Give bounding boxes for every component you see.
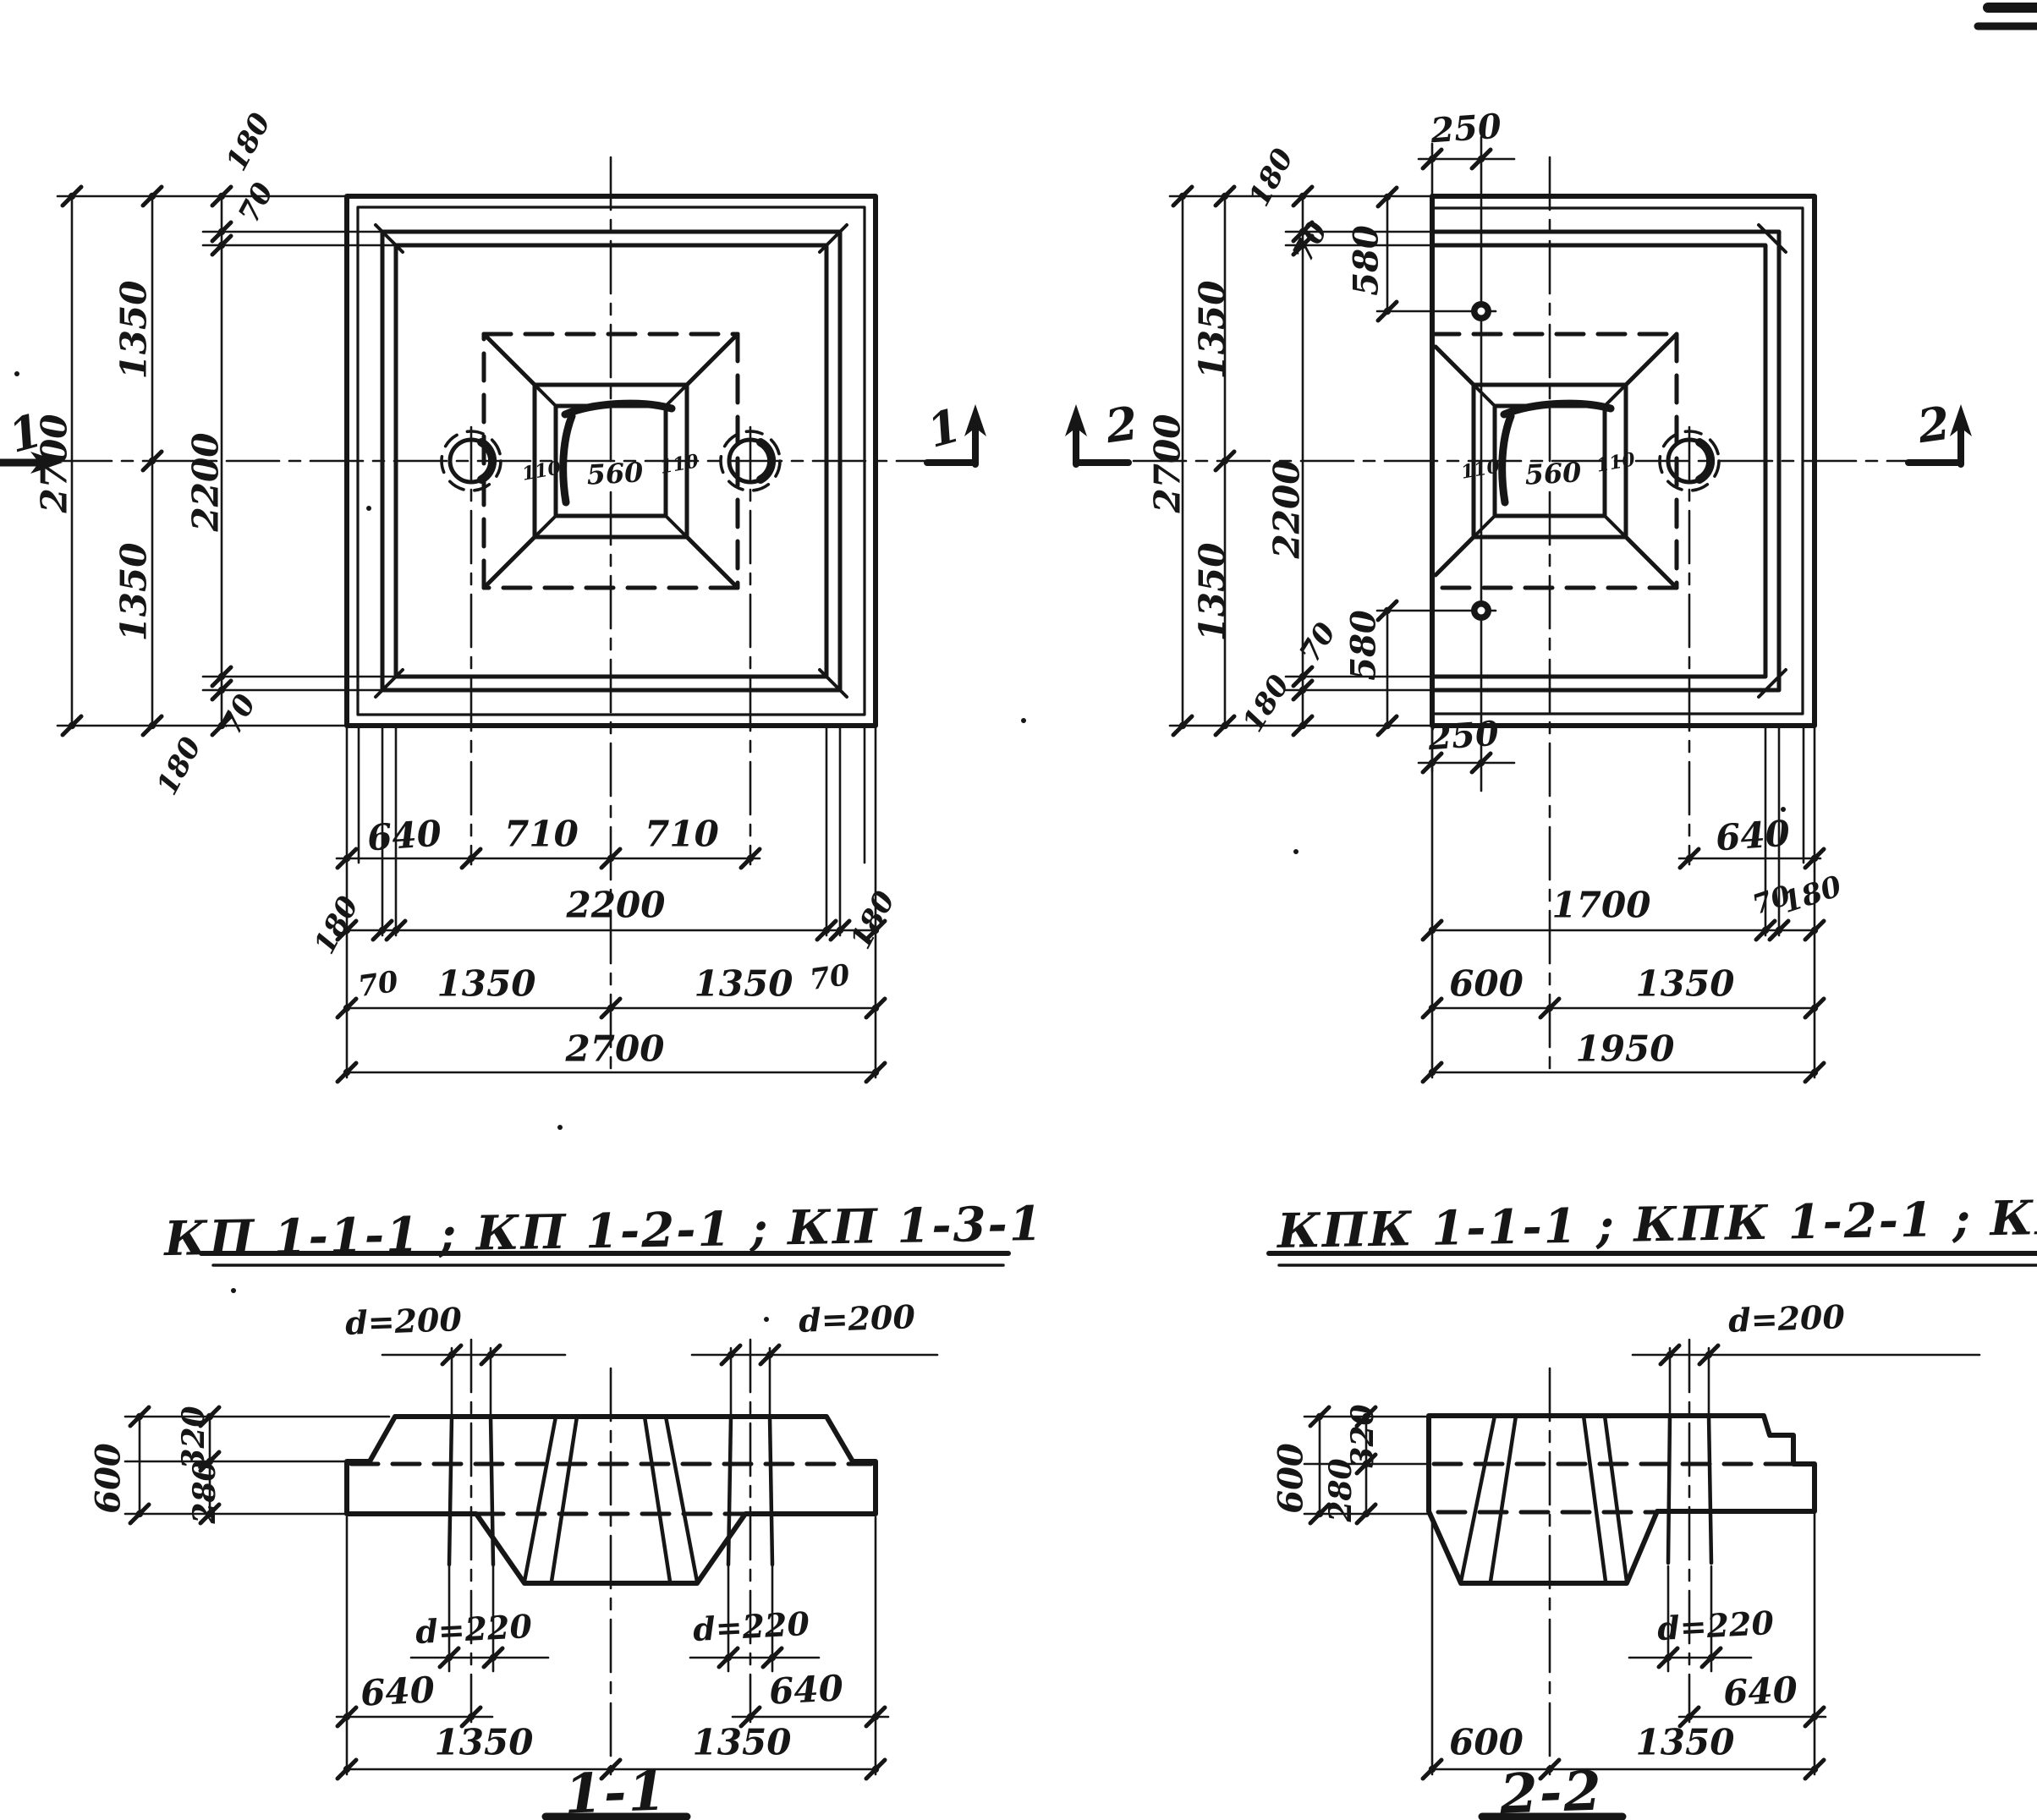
anchor-hole-dot — [14, 371, 19, 376]
drawing-line — [1605, 516, 1626, 537]
drawing-line — [1436, 537, 1474, 575]
label-plan-left-dim-2200-v: 2200 — [185, 433, 227, 533]
label-plan-right-dim-1700: 1700 — [1552, 885, 1651, 926]
anchor-hole-dot — [1781, 807, 1786, 812]
dim-dot — [1179, 193, 1186, 200]
dim-dot — [1665, 1654, 1672, 1661]
dim-dot — [343, 855, 350, 862]
dim-dot — [468, 855, 475, 862]
dim-dot — [393, 927, 399, 934]
label-plan-right-dim-70-bottom: 70 — [1293, 617, 1342, 669]
label-titles-section-right: 2-2 — [1498, 1759, 1604, 1820]
dim-dot — [1478, 759, 1485, 766]
dim-dot — [727, 1351, 734, 1358]
drawing-line — [1759, 670, 1786, 697]
label-plan-right-dim-180-top: 180 — [1243, 143, 1301, 212]
label-plan-left-dim-180-right: 180 — [844, 885, 903, 955]
dim-dot — [747, 855, 754, 862]
drawing-line — [820, 670, 847, 697]
drawing-line — [1584, 1416, 1606, 1582]
label-plan-left-dim-1350-left: 1350 — [437, 963, 536, 1005]
label-plan-right-dim-1350-top: 1350 — [1192, 281, 1233, 380]
label-plan-right-dim-250-bottom: 250 — [1426, 714, 1501, 759]
drawing-line — [687, 334, 738, 385]
dim-dot — [872, 1713, 879, 1720]
dim-dot — [149, 722, 156, 729]
outline-path — [1502, 416, 1511, 502]
dim-dot — [1546, 1005, 1553, 1011]
label-plan-right-dim-1950: 1950 — [1576, 1028, 1675, 1070]
label-section-1-dim-d200-left: d=200 — [344, 1300, 463, 1342]
dim-dot — [343, 1766, 350, 1773]
label-plan-left-dim-640: 640 — [366, 813, 443, 859]
label-section-2-dim-d220: d=220 — [1656, 1603, 1775, 1647]
label-titles-plan-left-types: КП 1-1-1 ; КП 1-2-1 ; КП 1-3-1 — [162, 1196, 1045, 1267]
drawing-line — [1626, 537, 1677, 588]
dim-dot — [1429, 759, 1436, 766]
label-titles-section-left: 1-1 — [563, 1759, 668, 1820]
label-plan-left-dim-1350-bottom: 1350 — [113, 543, 155, 642]
dim-dot — [343, 1069, 350, 1076]
drawing-line — [552, 1417, 577, 1582]
drawing-line — [666, 516, 687, 537]
dim-dot — [1429, 156, 1436, 162]
dim-dot — [766, 1351, 773, 1358]
drawing-line — [376, 225, 403, 252]
dim-dot — [1222, 722, 1228, 729]
dim-dot — [468, 1713, 475, 1720]
drawing-line — [1668, 1416, 1670, 1563]
dim-dot — [1299, 722, 1306, 729]
label-plan-left-dim-2700-v: 2700 — [34, 414, 75, 514]
label-plan-right-dim-180-right: 180 — [1778, 869, 1846, 920]
label-plan-right-dim-180-bottom: 180 — [1236, 669, 1297, 738]
dim-dot — [607, 1005, 614, 1011]
drawing-line — [484, 334, 535, 385]
foundation-blueprint: 1127001350135022001807070180640710710180… — [0, 0, 2037, 1820]
label-plan-right-dim-70-top: 70 — [1286, 216, 1335, 267]
label-plan-left-dim-2200-h: 2200 — [566, 885, 666, 926]
label-section-2-dim-600: 600 — [1271, 1443, 1311, 1514]
label-plan-left-dim-710-right: 710 — [645, 814, 719, 855]
drawing-line — [1436, 347, 1474, 385]
dim-dot — [446, 1654, 453, 1661]
dim-dot — [218, 687, 225, 693]
dim-dot — [149, 458, 156, 464]
label-plan-left-dim-1350-right: 1350 — [695, 963, 793, 1005]
drawing-line — [1605, 1416, 1627, 1582]
label-section-1-dim-d200-right: d=200 — [798, 1297, 916, 1340]
label-section-1-dim-640-right: 640 — [768, 1667, 844, 1713]
label-titles-plan-right-types: КПК 1-1-1 ; КПК 1-2-1 ; КПК 1-3-1 — [1275, 1186, 2037, 1259]
dim-dot — [218, 673, 225, 680]
label-plan-left-dim-1350-top: 1350 — [113, 281, 155, 380]
dim-dot — [1384, 194, 1391, 200]
label-section-1-dim-d220-right: d=220 — [692, 1604, 810, 1648]
dim-dot — [1811, 855, 1818, 862]
dim-dot — [343, 1005, 350, 1011]
outline-path — [1429, 1416, 1815, 1583]
label-plan-right-dim-1350-h: 1350 — [1636, 963, 1735, 1005]
label-plan-left-dim-180-top: 180 — [220, 107, 278, 177]
dim-dot — [769, 1654, 776, 1661]
dim-dot — [1686, 1713, 1693, 1720]
dim-dot — [218, 242, 225, 249]
label-plan-left-dim-70-left: 70 — [356, 965, 401, 1004]
dim-dot — [837, 927, 843, 934]
label-plan-right-dim-2700-v: 2700 — [1147, 414, 1189, 514]
drawing-line — [1709, 1416, 1711, 1563]
label-plan-left-dim-710-left: 710 — [504, 814, 579, 855]
label-section-1-dim-320: 320 — [176, 1406, 211, 1469]
anchor-hole-dot — [231, 1288, 236, 1293]
dim-dot — [1384, 722, 1391, 729]
drawing-line — [1474, 385, 1495, 406]
underlines-and-artifacts — [14, 8, 2037, 1820]
dim-dot — [1222, 458, 1228, 464]
label-section-2-dim-600-h: 600 — [1449, 1722, 1524, 1763]
dim-dot — [218, 228, 225, 235]
label-plan-right-dim-580-top: 580 — [1347, 225, 1386, 296]
drawing-line — [1605, 385, 1626, 406]
label-plan-left-socket-560: 560 — [586, 456, 645, 491]
drawing-line — [666, 385, 687, 406]
label-section-2-dim-280: 280 — [1323, 1458, 1359, 1522]
dim-dot — [487, 1351, 494, 1358]
dim-dot — [1666, 1351, 1673, 1358]
label-section-1-dim-d220-left: d=220 — [415, 1607, 533, 1651]
dim-dot — [872, 1069, 879, 1076]
dim-dot — [218, 193, 225, 200]
dim-dot — [1316, 1413, 1323, 1420]
drawing-line — [645, 1417, 670, 1582]
dim-dot — [1384, 308, 1391, 315]
dim-dot — [1708, 1654, 1715, 1661]
label-plan-right-dim-250-top: 250 — [1429, 107, 1503, 151]
dim-dot — [1363, 1510, 1370, 1517]
label-section-2-dim-1350: 1350 — [1636, 1722, 1735, 1763]
drawing-line — [376, 670, 403, 697]
dim-dot — [607, 855, 614, 862]
label-plan-left-marker-right: 1 — [922, 397, 967, 458]
dim-dot — [448, 1351, 455, 1358]
dim-dot — [490, 1654, 497, 1661]
dim-dot — [1299, 193, 1306, 200]
label-plan-right-dim-640: 640 — [1715, 813, 1792, 859]
dim-dot — [872, 1005, 879, 1011]
label-plan-right-dim-600: 600 — [1449, 963, 1524, 1005]
dim-dot — [1811, 1713, 1818, 1720]
label-plan-right-socket-560: 560 — [1524, 456, 1583, 491]
dim-dot — [1776, 927, 1782, 934]
anchor-hole-dot — [1478, 308, 1485, 315]
anchor-hole-dot — [1021, 718, 1026, 723]
dim-dot — [1299, 673, 1306, 680]
label-plan-right-socket-110-right: 110 — [1595, 448, 1637, 477]
label-section-2-dim-d200: d=200 — [1727, 1297, 1846, 1340]
label-plan-left-dim-180-bottom: 180 — [151, 732, 209, 801]
dim-dot — [1762, 927, 1769, 934]
label-plan-right-dim-1350-bottom: 1350 — [1192, 543, 1233, 642]
dim-dot — [69, 193, 75, 200]
dim-dot — [1811, 1069, 1818, 1076]
drawing-line — [770, 1417, 772, 1565]
dim-dot — [1429, 1069, 1436, 1076]
label-plan-left-dim-180-left: 180 — [308, 891, 366, 960]
label-plan-right-dim-2200-v: 2200 — [1266, 460, 1308, 560]
dim-dot — [823, 927, 830, 934]
label-plan-left-dim-70-top: 70 — [232, 177, 281, 228]
anchor-hole-dot — [366, 506, 371, 511]
label-section-1-dim-1350-left: 1350 — [435, 1722, 534, 1763]
anchor-hole-dot — [1293, 849, 1299, 854]
label-plan-right-marker-left: 2 — [1101, 396, 1141, 454]
label-plan-left-dim-2700-h: 2700 — [565, 1028, 665, 1070]
anchor-hole-dot — [557, 1125, 563, 1130]
dim-dot — [379, 927, 386, 934]
section-view-1-1 — [125, 1340, 937, 1779]
label-section-2-dim-640: 640 — [1722, 1669, 1798, 1714]
label-plan-left-dim-70-right: 70 — [808, 958, 853, 997]
drawing-line — [820, 225, 847, 252]
dim-dot — [1429, 1005, 1436, 1011]
drawing-line — [535, 516, 556, 537]
dim-dot — [1811, 1005, 1818, 1011]
dim-dot — [343, 1713, 350, 1720]
anchor-hole-dot — [764, 1317, 769, 1322]
dim-dot — [1429, 927, 1436, 934]
dim-dot — [1811, 1766, 1818, 1773]
section-view-2-2 — [1304, 1340, 1979, 1779]
label-section-1-dim-640-left: 640 — [360, 1669, 436, 1714]
dim-dot — [872, 1766, 879, 1773]
drawing-line — [1461, 1416, 1495, 1582]
dim-dot — [1811, 927, 1818, 934]
dim-dot — [136, 1510, 143, 1517]
label-section-1-dim-280: 280 — [187, 1460, 222, 1524]
dim-dot — [1222, 193, 1228, 200]
dim-dot — [747, 1713, 754, 1720]
dim-dot — [1429, 1766, 1436, 1773]
drawing-line — [1759, 225, 1786, 252]
dim-dot — [136, 1413, 143, 1420]
dim-dot — [1686, 855, 1693, 862]
label-plan-right-marker-right: 2 — [1913, 396, 1953, 454]
dim-dot — [69, 722, 75, 729]
drawing-line — [666, 1417, 697, 1582]
dim-dot — [1478, 156, 1485, 162]
label-section-1-dim-600: 600 — [89, 1443, 129, 1514]
dimension-labels: 1127001350135022001807070180640710710180… — [3, 107, 2037, 1820]
dim-dot — [1705, 1351, 1712, 1358]
dim-dot — [1179, 722, 1186, 729]
drawing-line — [449, 1417, 452, 1565]
drawing-line — [728, 1417, 731, 1565]
anchor-hole-dot — [1478, 607, 1485, 615]
drawing-line — [535, 385, 556, 406]
drawing-line — [484, 537, 535, 588]
label-section-1-dim-1350-right: 1350 — [693, 1722, 792, 1763]
dim-dot — [149, 193, 156, 200]
drawing-line — [1474, 516, 1495, 537]
outline-path — [563, 416, 572, 502]
drawing-line — [1491, 1416, 1516, 1582]
drawing-line — [491, 1417, 493, 1565]
drawing-line — [524, 1417, 556, 1582]
drawing-line — [687, 537, 738, 588]
dim-dot — [1384, 607, 1391, 614]
label-section-2-dim-320: 320 — [1345, 1404, 1381, 1467]
drawing-line — [1626, 334, 1677, 385]
drawing-sheet: 1127001350135022001807070180640710710180… — [0, 0, 2037, 1820]
dim-dot — [1316, 1510, 1323, 1517]
dim-dot — [725, 1654, 732, 1661]
label-plan-right-dim-580-bottom: 580 — [1344, 610, 1384, 681]
dim-dot — [1299, 687, 1306, 693]
